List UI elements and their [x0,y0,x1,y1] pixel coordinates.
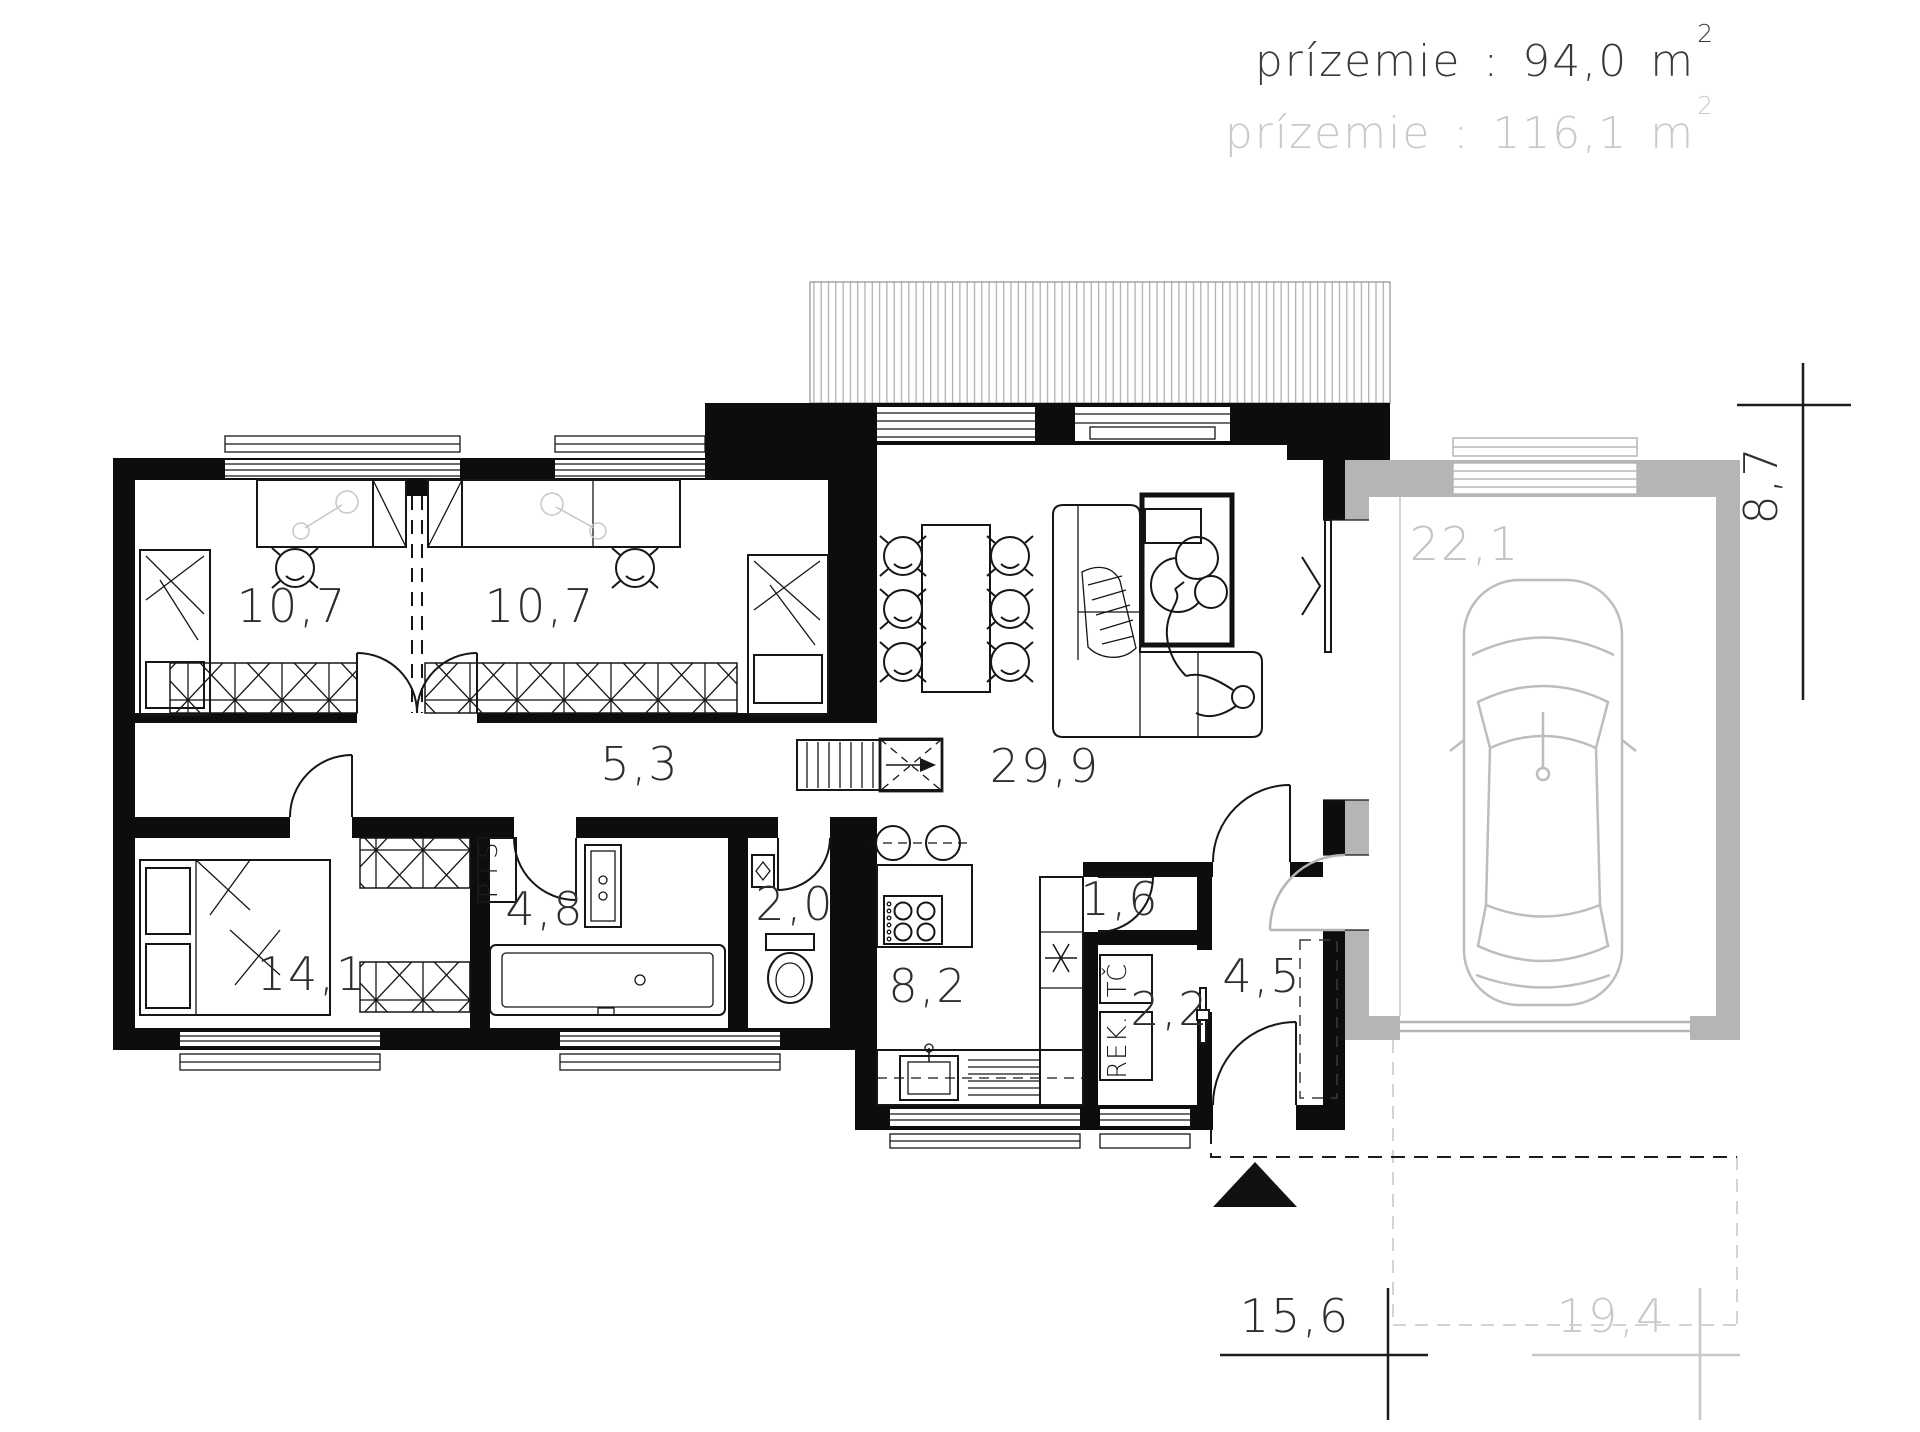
dimension-bottom-black: 15,6 [1220,1288,1428,1420]
garage-door [1400,1022,1690,1031]
door-direction-chevron [1302,557,1320,615]
floor-plan-svg: 22,1 [0,0,1920,1432]
dining-set [880,525,1033,692]
door-arc [290,755,352,817]
direction-arrow [920,758,936,772]
wardrobe-icon [360,838,470,888]
kitchen-counter [877,1044,1083,1105]
kitchen-island [877,865,972,947]
pantry-area-label: 1,6 [1080,872,1159,926]
wardrobe-icon [170,663,357,713]
dimension-right: 8,7 [1734,363,1851,700]
chair-icon [880,536,926,576]
car-icon [1450,580,1636,1005]
bathroom-area-label: 4,8 [505,882,584,936]
bar-stools [868,826,968,860]
wardrobe-icon [425,663,737,713]
lamp-icon [541,493,606,539]
entry-hall-area-label: 4,5 [1222,949,1301,1003]
sliding-door-leaf [1325,520,1331,652]
svg-text:P+S: P+S [474,842,504,899]
lamp-icon [293,491,358,539]
toilet-icon [766,934,814,1003]
dim-height-label: 8,7 [1734,445,1788,524]
chair-icon [987,642,1033,682]
garage: 22,1 [1345,438,1740,1325]
terrace-roof-hatch [810,282,1390,403]
chair-icon [612,548,658,588]
hob-icon [884,896,942,944]
entrance-marker [1213,1162,1297,1207]
entrance-door-arc [1213,1022,1296,1105]
door-arc [357,653,417,713]
kitchen-area-label: 8,2 [888,959,967,1013]
dimension-bottom-gray: 19,4 [1532,1288,1740,1420]
hall-door-arc [1213,785,1290,862]
star-symbol [1045,944,1077,972]
floor-plan-page: prízemie:94,0m2 prízemie:116,1m2 [0,0,1920,1432]
tech-room-area-label: 2,2 [1130,982,1209,1036]
dim-width-total-label: 19,4 [1557,1289,1667,1343]
garage-window [1453,438,1637,494]
living-room-area-label: 29,9 [990,739,1100,793]
wc-area-label: 2,0 [755,877,834,931]
canopy-dashed-line [1211,1130,1737,1157]
dim-width-house-label: 15,6 [1240,1289,1350,1343]
svg-text:REK.: REK. [1103,1015,1133,1079]
bedroom2-area-label: 10,7 [485,579,595,633]
desk-icon [462,480,680,547]
driveway-outline [1393,1040,1737,1325]
rug-icon [1142,495,1232,645]
chair-icon [987,589,1033,629]
garage-area-label: 22,1 [1410,517,1520,571]
desk-icon [257,480,373,547]
bedroom1-area-label: 10,7 [237,579,347,633]
svg-text:TČ: TČ [1101,963,1133,998]
movable-partition [412,496,422,713]
chair-icon [880,642,926,682]
tall-cabinets [1040,877,1083,1105]
vanity-sink-icon [585,845,621,927]
wardrobe-icon [360,962,470,1012]
chair-icon [880,589,926,629]
dining-table-icon [922,525,990,692]
corridor-area-label: 5,3 [600,737,679,791]
staircase-icon [797,739,942,791]
chair-icon [987,536,1033,576]
bed-icon [748,555,828,715]
bathtub-icon [490,945,725,1015]
bedroom3-area-label: 14,1 [257,947,367,1001]
